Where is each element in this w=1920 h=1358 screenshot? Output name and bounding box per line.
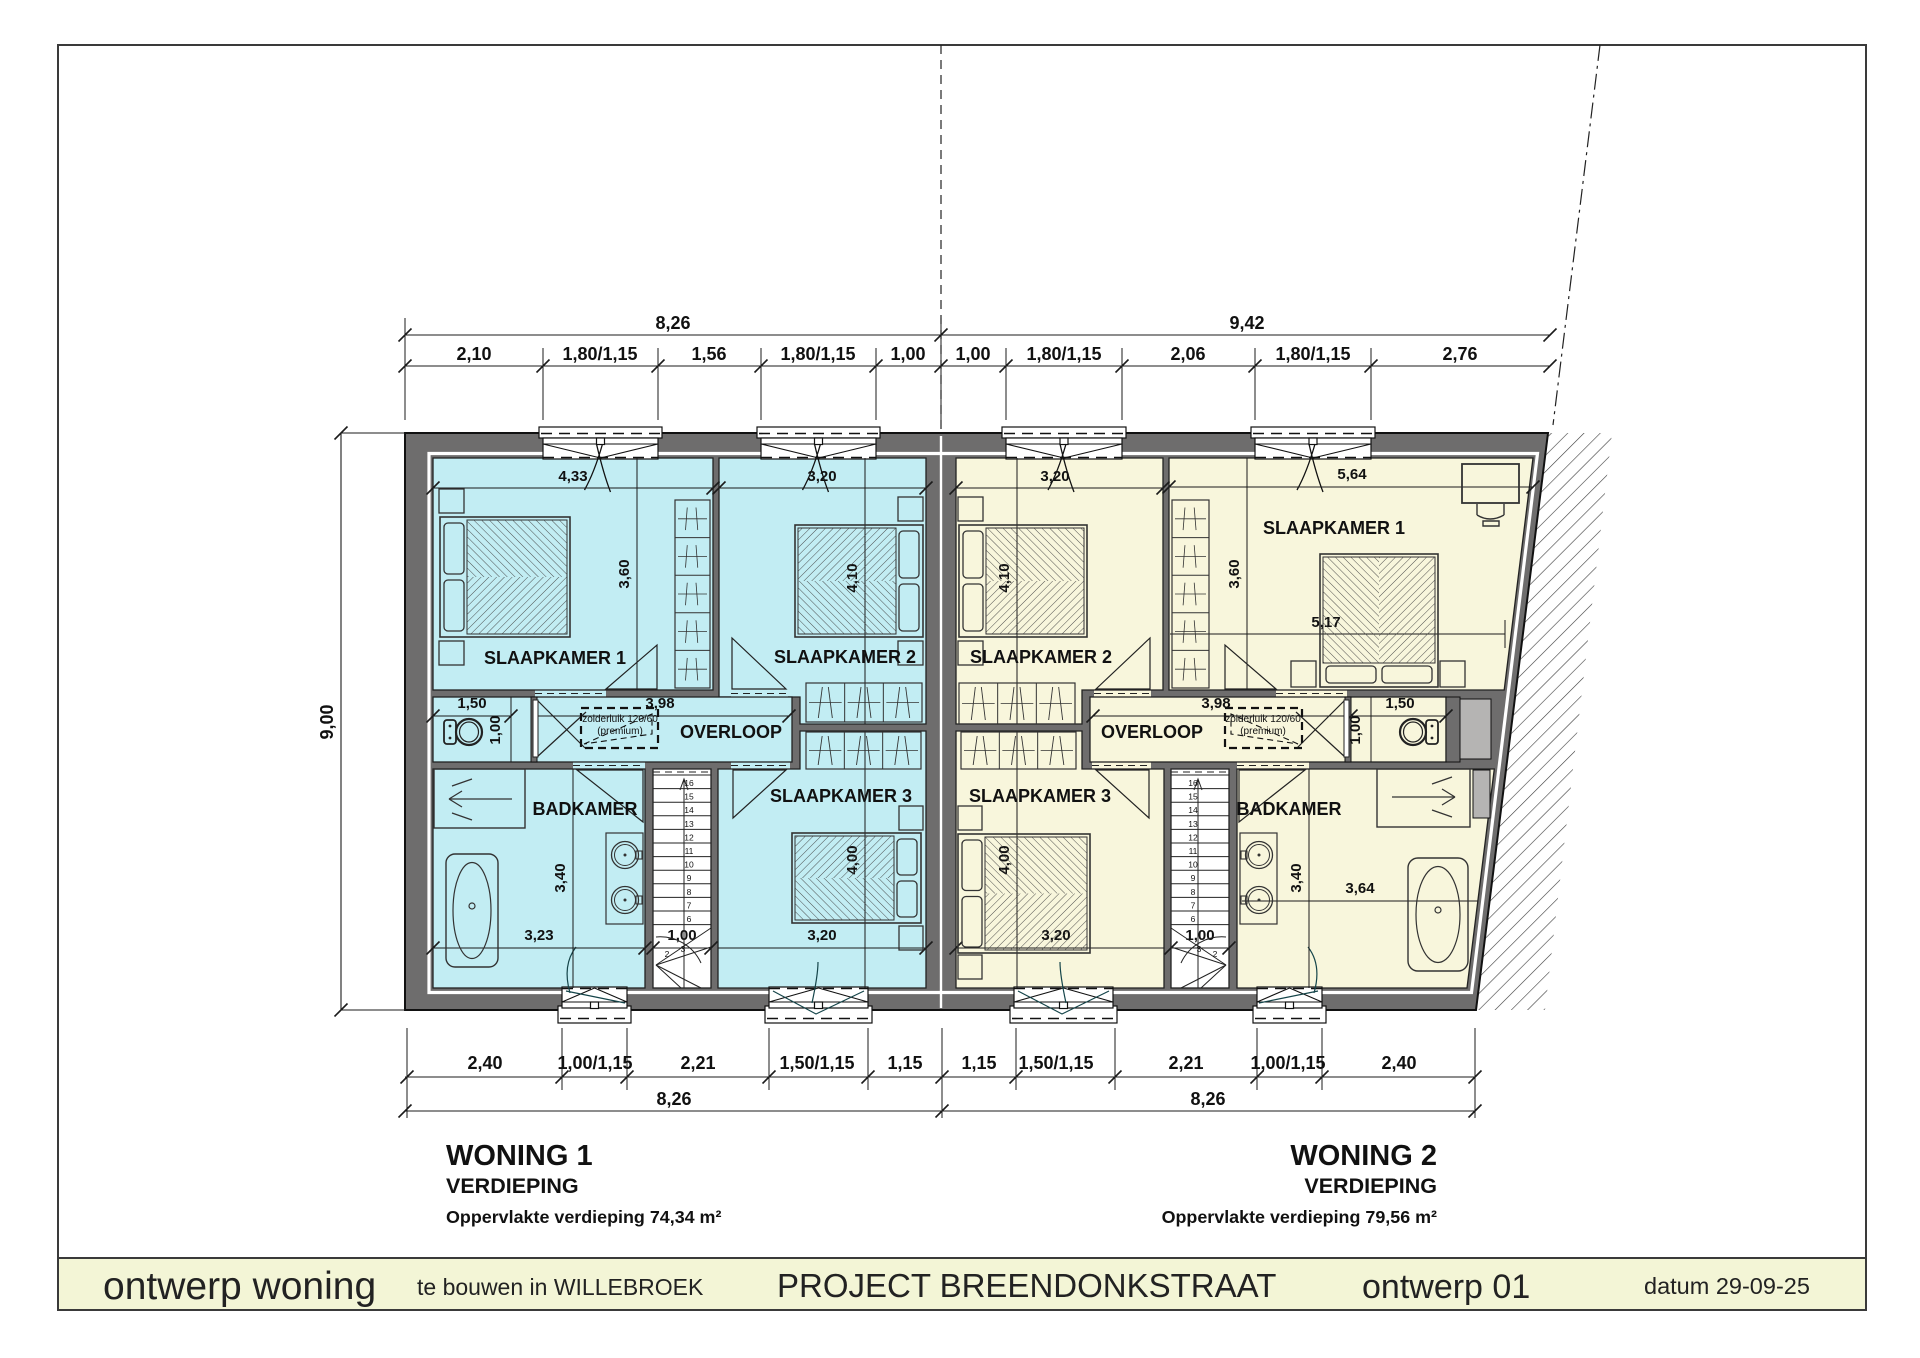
svg-text:3,23: 3,23 <box>524 927 553 944</box>
svg-text:1,50: 1,50 <box>457 695 486 712</box>
svg-text:6: 6 <box>1191 914 1196 924</box>
svg-text:8: 8 <box>687 887 692 897</box>
svg-text:3,20: 3,20 <box>1040 468 1069 485</box>
svg-text:SLAAPKAMER 2: SLAAPKAMER 2 <box>970 647 1112 667</box>
svg-text:ontwerp 01: ontwerp 01 <box>1362 1268 1530 1306</box>
svg-text:PROJECT BREENDONKSTRAAT: PROJECT BREENDONKSTRAAT <box>777 1267 1276 1304</box>
svg-text:te bouwen in WILLEBROEK: te bouwen in WILLEBROEK <box>417 1274 704 1300</box>
svg-text:1,15: 1,15 <box>887 1053 922 1073</box>
svg-text:1,00: 1,00 <box>1185 927 1214 944</box>
svg-text:10: 10 <box>1188 860 1198 870</box>
svg-text:12: 12 <box>684 832 694 842</box>
svg-text:1,50/1,15: 1,50/1,15 <box>1018 1053 1093 1073</box>
svg-text:3: 3 <box>681 944 686 954</box>
svg-text:Oppervlakte verdieping 79,56 m: Oppervlakte verdieping 79,56 m² <box>1162 1207 1437 1227</box>
svg-text:SLAAPKAMER 1: SLAAPKAMER 1 <box>1263 518 1405 538</box>
svg-text:2: 2 <box>665 949 670 959</box>
svg-text:datum 29-09-25: datum 29-09-25 <box>1644 1273 1810 1299</box>
svg-text:5,64: 5,64 <box>1337 466 1367 483</box>
svg-text:SLAAPKAMER 3: SLAAPKAMER 3 <box>770 786 912 806</box>
svg-text:8,26: 8,26 <box>1190 1089 1225 1109</box>
svg-text:1,00: 1,00 <box>955 344 990 364</box>
svg-text:8,26: 8,26 <box>655 313 690 333</box>
svg-text:9,42: 9,42 <box>1229 313 1264 333</box>
svg-text:3,64: 3,64 <box>1345 880 1375 897</box>
svg-text:zolderluik 120/60: zolderluik 120/60 <box>1225 714 1301 725</box>
svg-text:3,20: 3,20 <box>807 468 836 485</box>
svg-text:1,56: 1,56 <box>691 344 726 364</box>
svg-text:14: 14 <box>684 805 694 815</box>
svg-text:13: 13 <box>1188 819 1198 829</box>
svg-text:2,76: 2,76 <box>1442 344 1477 364</box>
svg-text:2,40: 2,40 <box>1381 1053 1416 1073</box>
svg-text:WONING 2: WONING 2 <box>1290 1140 1437 1172</box>
svg-text:1,15: 1,15 <box>961 1053 996 1073</box>
svg-text:16: 16 <box>1188 778 1198 788</box>
svg-text:1,80/1,15: 1,80/1,15 <box>780 344 855 364</box>
svg-text:BADKAMER: BADKAMER <box>1237 799 1342 819</box>
svg-text:(premium): (premium) <box>1240 726 1286 737</box>
svg-text:1,00: 1,00 <box>1347 715 1364 744</box>
svg-text:14: 14 <box>1188 805 1198 815</box>
svg-text:9: 9 <box>1191 873 1196 883</box>
svg-text:1,50: 1,50 <box>1385 695 1414 712</box>
svg-text:4,33: 4,33 <box>558 468 587 485</box>
svg-text:WONING 1: WONING 1 <box>446 1140 593 1172</box>
svg-text:(premium): (premium) <box>597 726 643 737</box>
svg-text:13: 13 <box>684 819 694 829</box>
svg-text:12: 12 <box>1188 832 1198 842</box>
svg-text:8,26: 8,26 <box>656 1089 691 1109</box>
svg-text:2,21: 2,21 <box>1168 1053 1203 1073</box>
svg-text:10: 10 <box>684 860 694 870</box>
svg-text:7: 7 <box>687 900 692 910</box>
svg-text:11: 11 <box>685 846 694 856</box>
svg-text:2,40: 2,40 <box>467 1053 502 1073</box>
svg-text:8: 8 <box>1191 887 1196 897</box>
svg-text:9,00: 9,00 <box>317 704 337 739</box>
svg-text:1,00/1,15: 1,00/1,15 <box>557 1053 632 1073</box>
svg-text:3,20: 3,20 <box>807 927 836 944</box>
svg-text:3,40: 3,40 <box>1288 863 1305 892</box>
svg-text:2,06: 2,06 <box>1170 344 1205 364</box>
svg-text:OVERLOOP: OVERLOOP <box>1101 722 1203 742</box>
svg-text:3,40: 3,40 <box>552 863 569 892</box>
svg-text:VERDIEPING: VERDIEPING <box>1304 1174 1437 1198</box>
svg-text:11: 11 <box>1189 846 1198 856</box>
svg-text:15: 15 <box>1188 792 1198 802</box>
svg-text:SLAAPKAMER 3: SLAAPKAMER 3 <box>969 786 1111 806</box>
svg-text:9: 9 <box>687 873 692 883</box>
svg-text:BADKAMER: BADKAMER <box>533 799 638 819</box>
svg-text:2,10: 2,10 <box>456 344 491 364</box>
svg-text:1,00/1,15: 1,00/1,15 <box>1250 1053 1325 1073</box>
svg-text:6: 6 <box>687 914 692 924</box>
svg-text:SLAAPKAMER 1: SLAAPKAMER 1 <box>484 648 626 668</box>
svg-text:7: 7 <box>1191 900 1196 910</box>
svg-text:1,50/1,15: 1,50/1,15 <box>779 1053 854 1073</box>
svg-text:Oppervlakte verdieping 74,34 m: Oppervlakte verdieping 74,34 m² <box>446 1207 721 1227</box>
svg-text:3,98: 3,98 <box>1201 695 1230 712</box>
svg-text:15: 15 <box>684 792 694 802</box>
svg-text:3,60: 3,60 <box>616 559 633 588</box>
svg-text:3,98: 3,98 <box>645 695 674 712</box>
svg-text:ontwerp woning: ontwerp woning <box>103 1265 376 1308</box>
svg-text:16: 16 <box>684 778 694 788</box>
svg-text:3: 3 <box>1197 944 1202 954</box>
svg-text:2: 2 <box>1213 949 1218 959</box>
svg-text:1,80/1,15: 1,80/1,15 <box>1026 344 1101 364</box>
svg-text:3,60: 3,60 <box>1226 559 1243 588</box>
svg-text:1,00: 1,00 <box>667 927 696 944</box>
svg-text:OVERLOOP: OVERLOOP <box>680 722 782 742</box>
svg-text:1,80/1,15: 1,80/1,15 <box>1275 344 1350 364</box>
svg-text:2,21: 2,21 <box>680 1053 715 1073</box>
svg-text:zolderluik 120/60: zolderluik 120/60 <box>582 714 658 725</box>
svg-text:VERDIEPING: VERDIEPING <box>446 1174 579 1198</box>
svg-text:1,00: 1,00 <box>890 344 925 364</box>
svg-text:1,00: 1,00 <box>487 715 504 744</box>
svg-text:SLAAPKAMER 2: SLAAPKAMER 2 <box>774 647 916 667</box>
svg-text:1,80/1,15: 1,80/1,15 <box>562 344 637 364</box>
